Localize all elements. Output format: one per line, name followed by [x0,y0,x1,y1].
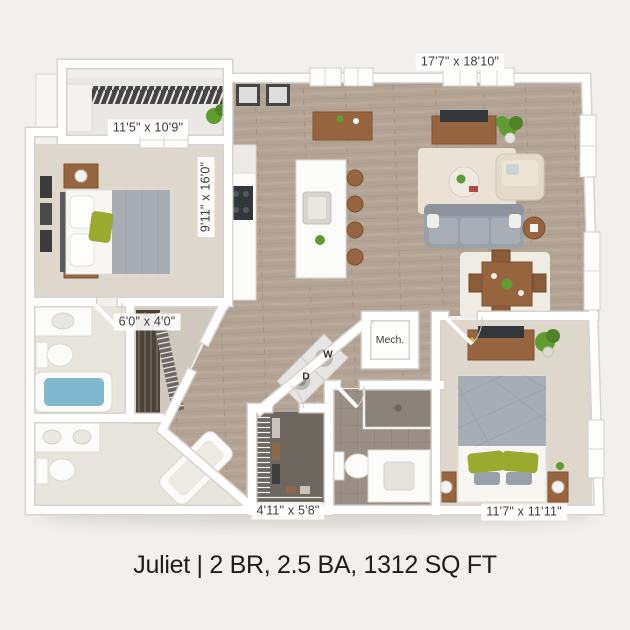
washer-label: W [323,350,332,361]
plant-icon [457,175,466,184]
dim-label-walkin: 4'11" x 5'8" [251,503,324,520]
plan-caption: Juliet | 2 BR, 2.5 BA, 1312 SQ FT [133,551,496,580]
plant-icon [337,116,344,123]
toilet-tank [334,452,344,480]
wall-art-icon [40,203,52,225]
wall-art-icon [40,230,52,252]
dim-label-bedroom2: 11'7" x 11'11" [481,504,567,521]
hanging-clothes [272,418,280,438]
dining-chair [533,274,546,292]
dining-chair [469,274,482,292]
bathtub-water [44,378,104,406]
tv-icon [440,110,488,122]
hanging-clothes [272,442,280,460]
shoes [286,486,296,494]
dim-label-living: 17'7" x 18'10" [416,54,504,71]
dryer-label: D [302,372,309,383]
decor-box [530,224,538,232]
lamp-icon [440,481,452,493]
balcony-railing [92,86,226,104]
accent-pillow [501,450,539,473]
wall-art-icon [40,176,52,198]
toilet-icon [345,454,371,478]
lamp-icon [552,481,564,493]
dining-chair [492,250,510,263]
dim-label-bedroom1: 11'5" x 10'9" [108,120,188,137]
balcony-planter [66,84,92,132]
plant-icon [315,235,325,245]
bar-stool [347,222,363,238]
sofa-cushion [460,218,489,244]
bar-stool [347,249,363,265]
sink-icon [73,430,91,444]
toilet-icon [47,344,73,366]
bar-stool [347,170,363,186]
shoes [300,486,310,494]
plant-icon [502,279,513,290]
plant-icon [556,462,564,470]
bed-duvet [112,190,170,274]
floor-plan-drawing [0,0,630,630]
pillow [509,214,521,228]
dim-label-kitchen: 9'11" x 16'0" [198,157,215,237]
mech-label: Mech. [376,334,405,346]
pillow [506,164,519,175]
hanging-clothes [272,464,280,484]
sink-icon [52,313,74,329]
dining-area [460,250,550,318]
toilet-tank [36,458,48,484]
sofa-back [424,204,524,216]
book [469,186,478,192]
sink-icon [43,430,61,444]
accent-pillow [88,211,114,244]
sideboard [313,112,372,140]
toilet-tank [36,342,48,368]
tv-icon [478,326,524,338]
pillow [506,472,532,485]
shower-drain-icon [395,405,402,412]
pillow [427,214,439,228]
pillow [70,196,94,228]
toilet-icon [49,459,75,481]
accent-pillow [467,450,505,474]
wire-shelf [257,413,270,501]
floor-plan-page: 11'5" x 10'9" 17'7" x 18'10" 9'11" x 16'… [0,0,630,630]
dim-label-closet: 6'0" x 4'0" [114,314,181,331]
lamp-icon [75,170,87,182]
bar-stool [347,196,363,212]
pillow [474,472,500,485]
sink-icon [384,462,414,490]
